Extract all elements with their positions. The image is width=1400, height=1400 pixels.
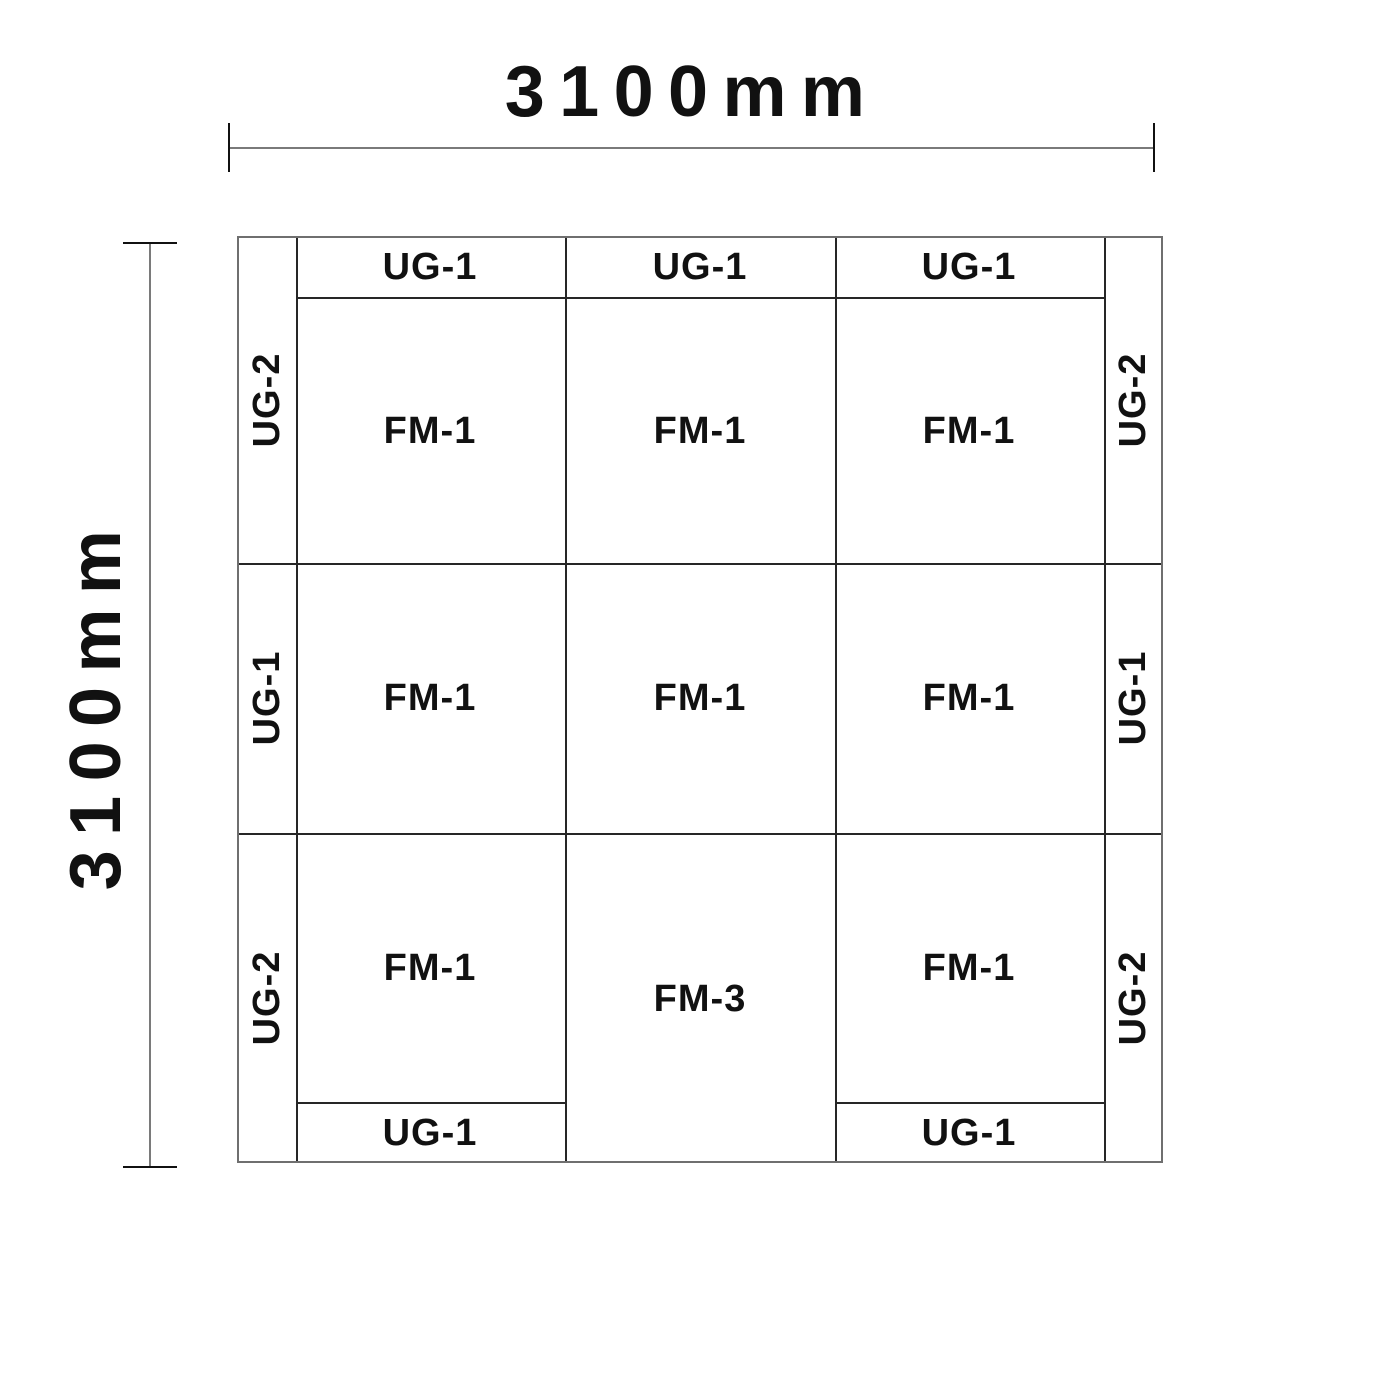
grid-line-bottom-strip-right xyxy=(835,1102,1104,1104)
panel-grid: UG-1 UG-1 UG-1 UG-2 UG-1 UG-2 UG-2 UG-1 … xyxy=(237,236,1163,1163)
strip-label-right-1: UG-2 xyxy=(1114,353,1152,448)
grid-line-row-2-3 xyxy=(239,833,1161,835)
cell-label-r2c2: FM-1 xyxy=(654,679,747,717)
strip-label-left-3: UG-2 xyxy=(248,951,286,1046)
top-dimension-label: 3100mm xyxy=(292,56,1092,128)
grid-line-bottom-strip-left xyxy=(296,1102,565,1104)
left-dimension-label: 3100mm xyxy=(60,516,132,891)
strip-label-bottom-2: UG-1 xyxy=(922,1114,1017,1152)
grid-line-vertical-3 xyxy=(835,238,837,1161)
strip-label-top-1: UG-1 xyxy=(383,248,478,286)
strip-label-right-2: UG-1 xyxy=(1114,651,1152,746)
cell-label-r3c2: FM-3 xyxy=(654,980,747,1018)
left-dimension-tick-top xyxy=(123,242,177,244)
strip-label-top-2: UG-1 xyxy=(653,248,748,286)
strip-label-right-3: UG-2 xyxy=(1114,951,1152,1046)
grid-line-top-strip-bottom xyxy=(296,297,1104,299)
cell-label-r2c3: FM-1 xyxy=(923,679,1016,717)
cell-label-r3c1: FM-1 xyxy=(384,949,477,987)
top-dimension-line xyxy=(229,147,1154,149)
strip-label-top-3: UG-1 xyxy=(922,248,1017,286)
top-dimension-tick-right xyxy=(1153,123,1155,172)
cell-label-r1c2: FM-1 xyxy=(654,412,747,450)
strip-label-left-1: UG-2 xyxy=(248,353,286,448)
grid-line-vertical-4 xyxy=(1104,238,1106,1161)
cell-label-r1c3: FM-1 xyxy=(923,412,1016,450)
grid-line-row-1-2 xyxy=(239,563,1161,565)
grid-line-vertical-2 xyxy=(565,238,567,1161)
cell-label-r2c1: FM-1 xyxy=(384,679,477,717)
left-dimension-line xyxy=(149,243,151,1167)
drawing-canvas: 3100mm 3100mm UG-1 UG-1 UG-1 UG-2 UG-1 U… xyxy=(0,0,1400,1400)
grid-line-vertical-1 xyxy=(296,238,298,1161)
strip-label-left-2: UG-1 xyxy=(248,651,286,746)
cell-label-r1c1: FM-1 xyxy=(384,412,477,450)
strip-label-bottom-1: UG-1 xyxy=(383,1114,478,1152)
top-dimension-tick-left xyxy=(228,123,230,172)
left-dimension-tick-bottom xyxy=(123,1166,177,1168)
cell-label-r3c3: FM-1 xyxy=(923,949,1016,987)
